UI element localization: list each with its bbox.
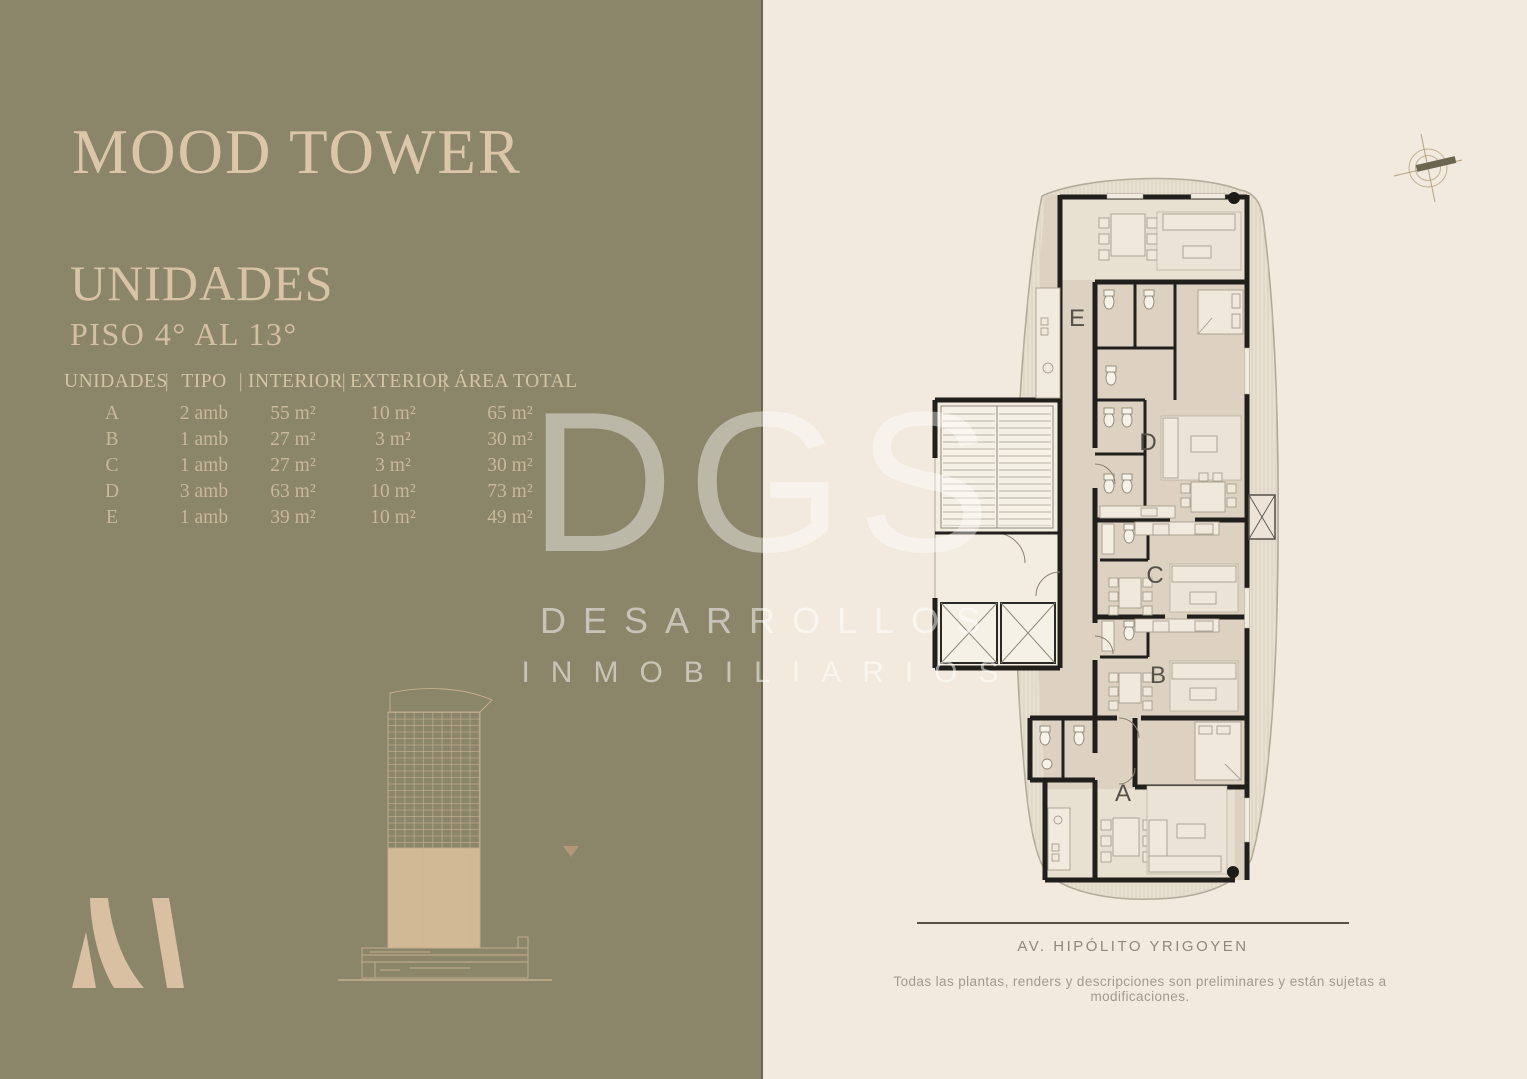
- cell-exterior: 10 m²: [350, 403, 436, 425]
- cell-area-total: 30 m²: [454, 429, 566, 451]
- cell-tipo: 3 amb: [174, 481, 234, 503]
- table-row-c: C 1 amb 27 m² 3 m² 30 m²: [64, 453, 576, 479]
- panel-divider: [761, 0, 763, 1079]
- units-table: UNIDADES | TIPO | INTERIOR | EXTERIOR | …: [64, 369, 576, 531]
- elevators: [941, 603, 1055, 663]
- table-row-a: A 2 amb 55 m² 10 m² 65 m²: [64, 401, 576, 427]
- street-divider-line: [917, 922, 1349, 924]
- cell-unidad: A: [64, 403, 160, 425]
- col-tipo: TIPO: [174, 371, 234, 393]
- unit-label-b: B: [1150, 662, 1166, 689]
- floor-highlight-marker: [563, 846, 579, 857]
- terrace-box: [1249, 495, 1275, 539]
- unit-label-a: A: [1115, 780, 1131, 807]
- cell-exterior: 3 m²: [350, 455, 436, 477]
- cell-exterior: 10 m²: [350, 481, 436, 503]
- header-separator: |: [160, 371, 174, 393]
- compass-icon: [1392, 131, 1466, 205]
- cell-interior: 63 m²: [248, 481, 338, 503]
- table-row-b: B 1 amb 27 m² 3 m² 30 m²: [64, 427, 576, 453]
- floor-plan: E D C B A: [895, 168, 1295, 908]
- cell-exterior: 10 m²: [350, 507, 436, 529]
- disclaimer-text: Todas las plantas, renders y descripcion…: [860, 974, 1420, 1004]
- cell-exterior: 3 m²: [350, 429, 436, 451]
- cell-interior: 27 m²: [248, 455, 338, 477]
- col-exterior: EXTERIOR: [350, 371, 436, 393]
- header-separator: |: [234, 371, 248, 393]
- cell-unidad: B: [64, 429, 160, 451]
- cell-unidad: D: [64, 481, 160, 503]
- col-area-total: ÁREA TOTAL: [454, 371, 566, 393]
- table-row-e: E 1 amb 39 m² 10 m² 49 m²: [64, 505, 576, 531]
- cell-interior: 39 m²: [248, 507, 338, 529]
- cell-area-total: 73 m²: [454, 481, 566, 503]
- cell-tipo: 1 amb: [174, 455, 234, 477]
- cell-interior: 55 m²: [248, 403, 338, 425]
- cell-tipo: 1 amb: [174, 507, 234, 529]
- header-separator: |: [338, 371, 350, 393]
- header-separator: |: [436, 371, 454, 393]
- left-panel: MOOD TOWER UNIDADES PISO 4° AL 13° UNIDA…: [0, 0, 763, 1079]
- col-unidades: UNIDADES: [64, 371, 160, 393]
- unit-label-d: D: [1139, 429, 1156, 456]
- building-elevation-illustration: [330, 660, 560, 990]
- cell-unidad: E: [64, 507, 160, 529]
- mood-monogram-logo: [65, 890, 195, 995]
- project-title: MOOD TOWER: [72, 116, 522, 189]
- floor-range-subtitle: PISO 4° AL 13°: [70, 316, 298, 353]
- brochure-page: MOOD TOWER UNIDADES PISO 4° AL 13° UNIDA…: [0, 0, 1527, 1079]
- cell-unidad: C: [64, 455, 160, 477]
- unit-label-c: C: [1146, 562, 1163, 589]
- street-label: AV. HIPÓLITO YRIGOYEN: [898, 938, 1368, 955]
- stairs: [941, 406, 1053, 528]
- plan-dot-bottom: [1227, 866, 1239, 878]
- cell-area-total: 30 m²: [454, 455, 566, 477]
- units-heading: UNIDADES: [70, 254, 334, 312]
- plan-dot-top: [1228, 192, 1240, 204]
- cell-tipo: 1 amb: [174, 429, 234, 451]
- table-header: UNIDADES | TIPO | INTERIOR | EXTERIOR | …: [64, 369, 576, 395]
- cell-area-total: 49 m²: [454, 507, 566, 529]
- cell-area-total: 65 m²: [454, 403, 566, 425]
- cell-interior: 27 m²: [248, 429, 338, 451]
- table-row-d: D 3 amb 63 m² 10 m² 73 m²: [64, 479, 576, 505]
- unit-label-e: E: [1069, 305, 1085, 332]
- cell-tipo: 2 amb: [174, 403, 234, 425]
- col-interior: INTERIOR: [248, 371, 338, 393]
